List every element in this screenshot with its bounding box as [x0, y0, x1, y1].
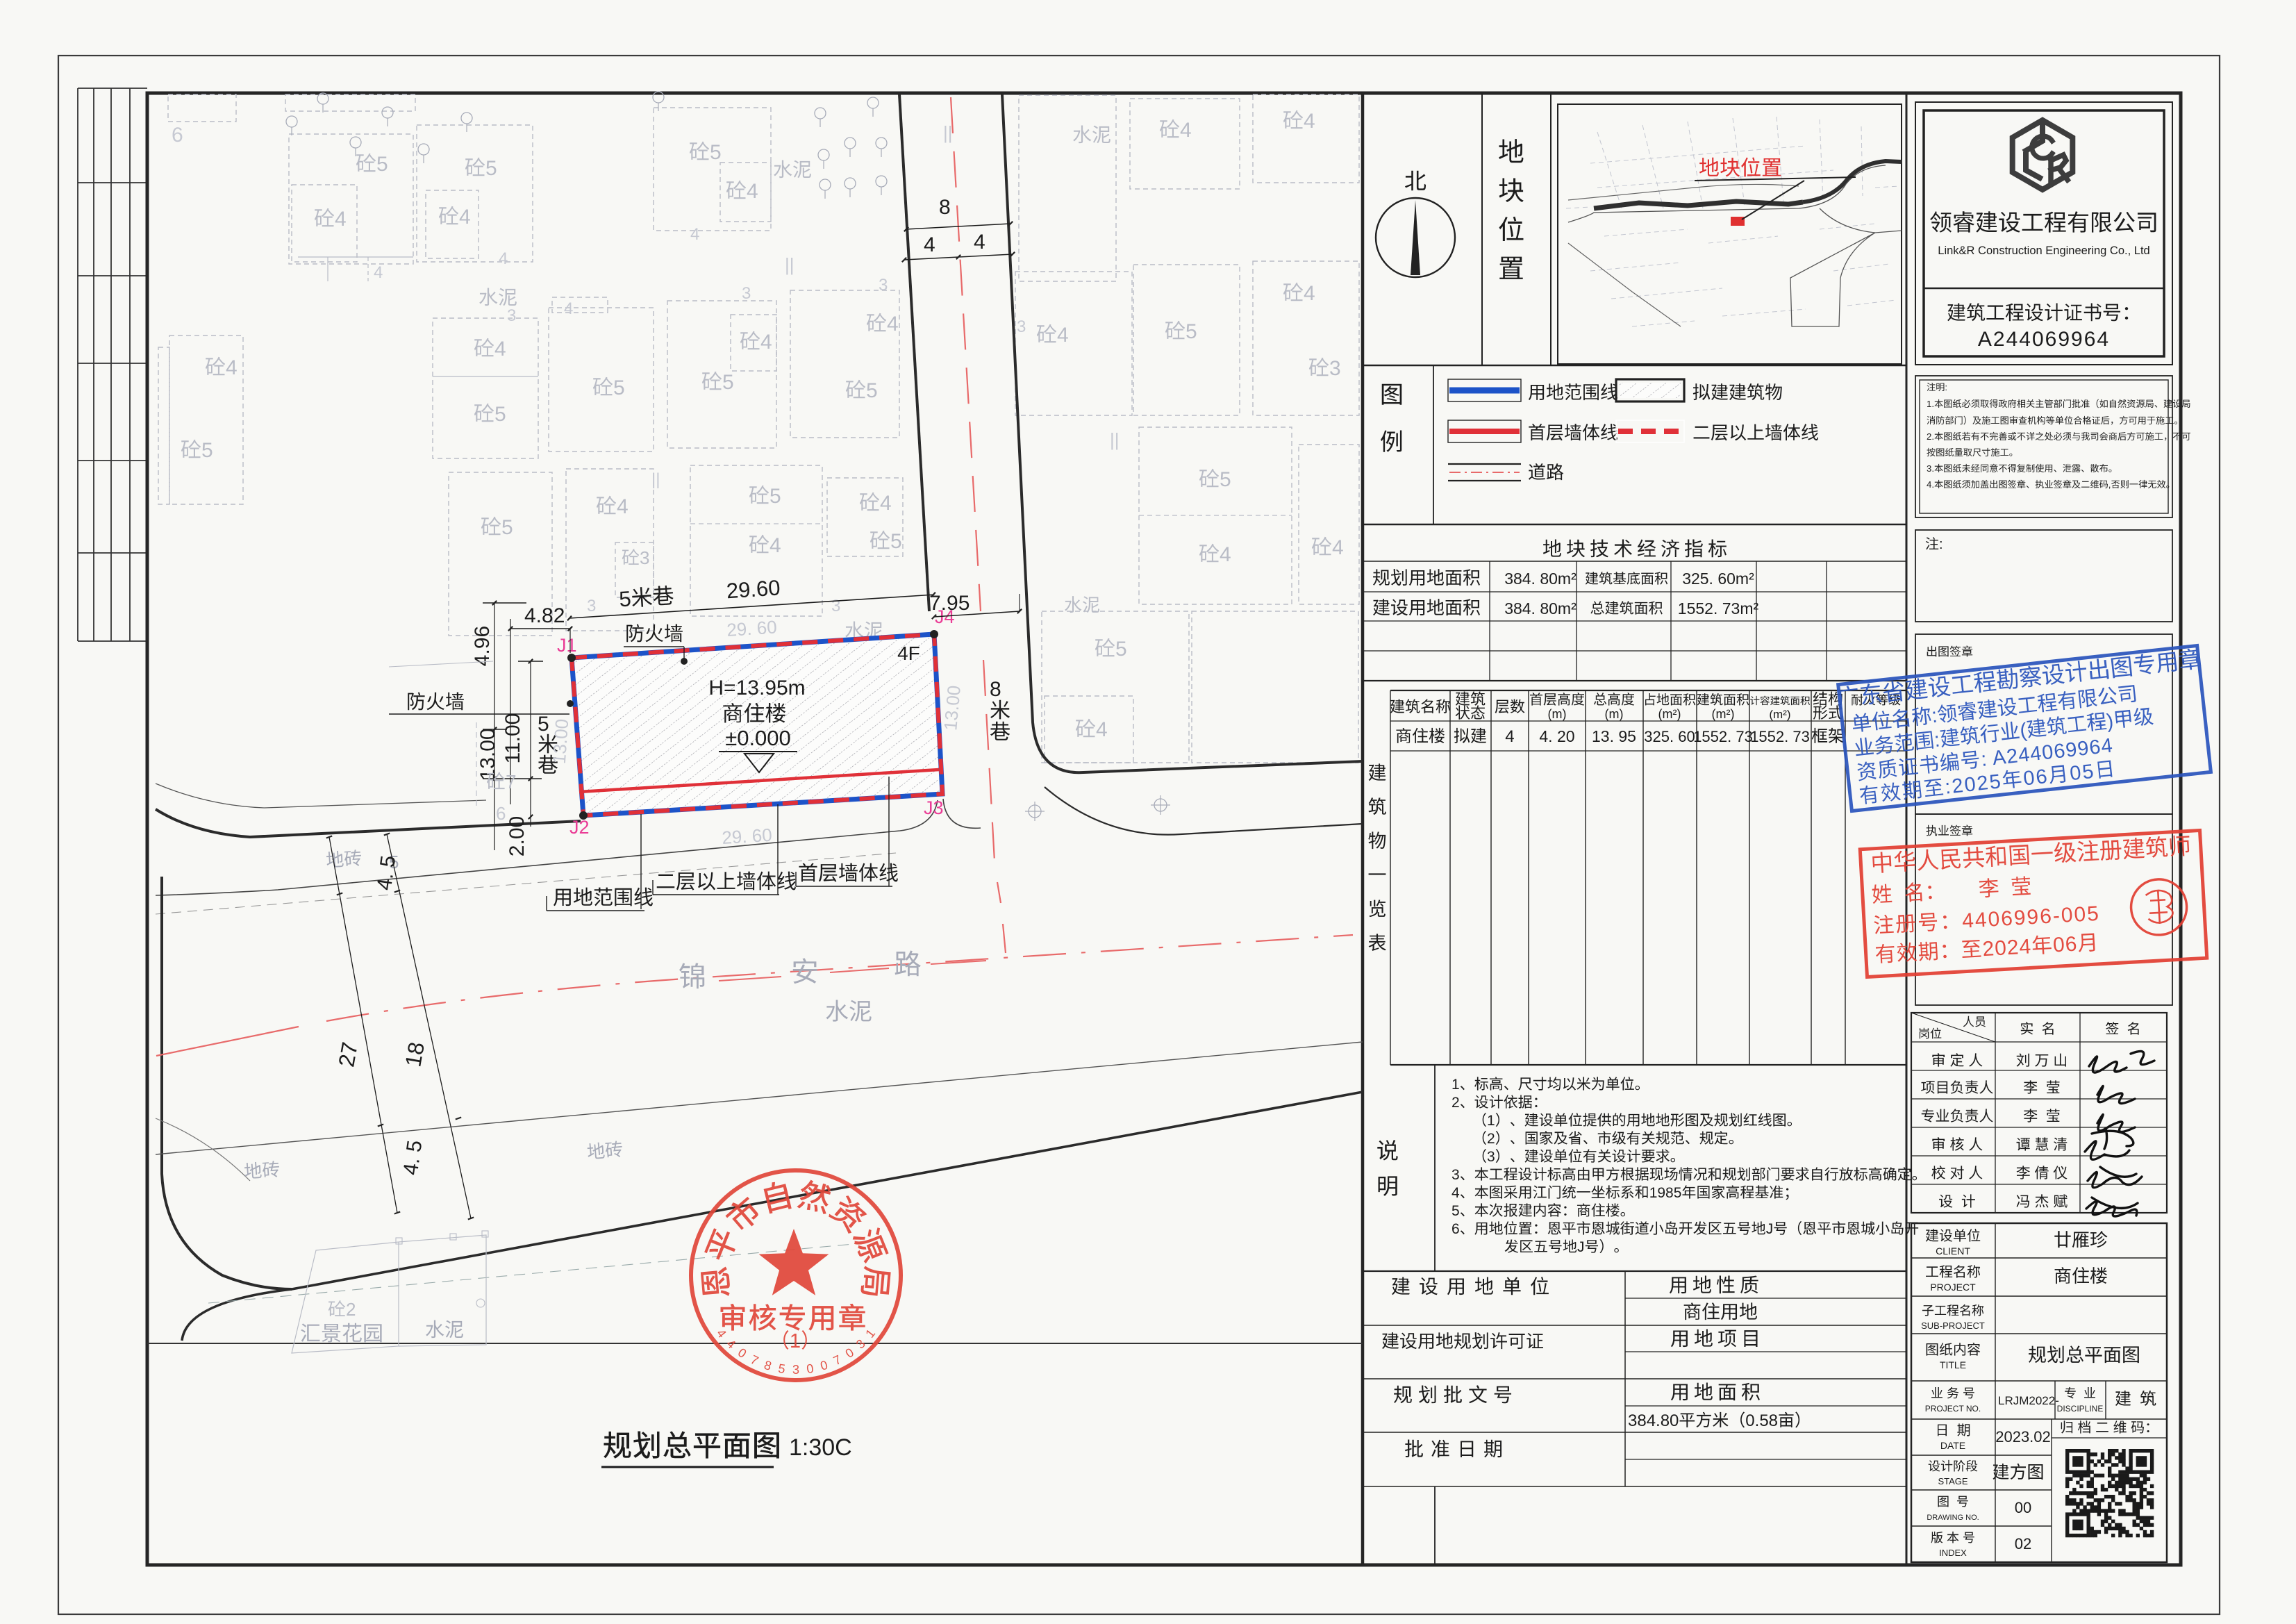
svg-text:||: ||: [943, 122, 953, 143]
svg-text:2: 2: [1487, 1131, 1495, 1147]
svg-text:4: 4: [887, 313, 899, 335]
svg-text:0: 0: [843, 1345, 857, 1361]
svg-text:6: 6: [496, 803, 506, 824]
svg-text:5: 5: [1186, 320, 1197, 343]
svg-text:DRAWING NO.: DRAWING NO.: [1927, 1514, 1979, 1522]
svg-text:2: 2: [1451, 1095, 1460, 1111]
svg-text:5: 5: [1115, 638, 1127, 661]
svg-text:02: 02: [2015, 1535, 2031, 1552]
svg-text:6: 6: [172, 124, 183, 147]
svg-text:±0.000: ±0.000: [725, 726, 791, 750]
svg-text:4: 4: [747, 180, 758, 203]
svg-text:4: 4: [374, 263, 383, 282]
svg-text:0: 0: [806, 1361, 815, 1376]
svg-text:DISCIPLINE: DISCIPLINE: [2057, 1404, 2104, 1414]
svg-text:4: 4: [617, 495, 629, 518]
svg-text:4406996-005: 4406996-005: [1961, 902, 2100, 933]
svg-text:5: 5: [618, 586, 631, 611]
svg-text::: :: [1945, 382, 1947, 392]
svg-text:(m): (m): [1605, 707, 1624, 721]
svg-text:00: 00: [2015, 1499, 2031, 1516]
svg-text:5: 5: [376, 153, 388, 176]
svg-text:1552. 73m²: 1552. 73m²: [1678, 599, 1759, 618]
svg-text:1: 1: [1487, 1113, 1495, 1129]
svg-text:5: 5: [501, 516, 513, 539]
svg-text:0: 0: [819, 1358, 830, 1373]
svg-text:INDEX: INDEX: [1939, 1548, 1967, 1558]
svg-text:27: 27: [333, 1040, 363, 1068]
svg-text:(: (: [2019, 720, 2028, 743]
svg-text:4: 4: [760, 331, 772, 354]
svg-text:3: 3: [831, 597, 840, 615]
svg-text:1985: 1985: [1649, 1185, 1682, 1201]
svg-text:5: 5: [494, 403, 506, 426]
svg-text:(m²): (m²): [1712, 707, 1735, 721]
svg-text:3: 3: [1451, 1167, 1460, 1183]
svg-text:3: 3: [742, 284, 751, 303]
svg-text:2: 2: [346, 1299, 356, 1320]
svg-text:2024: 2024: [1982, 935, 2032, 961]
svg-text:13.00: 13.00: [476, 728, 499, 780]
svg-text:A244069964: A244069964: [1978, 328, 2110, 351]
svg-text:TITLE: TITLE: [1940, 1359, 1966, 1370]
svg-text:13.00: 13.00: [940, 684, 965, 731]
svg-text:DATE: DATE: [1940, 1440, 1965, 1451]
svg-text:CLIENT: CLIENT: [1936, 1245, 1970, 1257]
svg-text:4: 4: [1057, 324, 1069, 347]
svg-text:Link&R Construction Engineerin: Link&R Construction Engineering Co., Ltd: [1938, 245, 2149, 257]
svg-text:4. 20: 4. 20: [1539, 727, 1574, 745]
svg-text:2023.02: 2023.02: [1995, 1428, 2051, 1445]
svg-text:29. 60: 29. 60: [726, 616, 777, 640]
svg-text:5: 5: [710, 141, 722, 164]
svg-text:1.: 1.: [1927, 399, 1934, 409]
svg-text:7.95: 7.95: [929, 592, 970, 615]
svg-text:4: 4: [1220, 543, 1231, 566]
svg-text:4: 4: [974, 231, 985, 254]
svg-text:0.58: 0.58: [1745, 1411, 1778, 1430]
svg-text:7: 7: [831, 1352, 844, 1368]
svg-text:STAGE: STAGE: [1938, 1476, 1968, 1486]
svg-text:3: 3: [507, 306, 516, 325]
svg-text:J: J: [1577, 1239, 1585, 1255]
svg-text:4.96: 4.96: [471, 626, 494, 666]
svg-text:05: 05: [2069, 761, 2097, 786]
svg-text:06: 06: [2052, 933, 2078, 957]
svg-text:13.00: 13.00: [549, 718, 572, 765]
svg-text:29. 60: 29. 60: [722, 825, 773, 848]
svg-text:||: ||: [785, 254, 795, 275]
svg-text:13. 95: 13. 95: [1592, 727, 1636, 745]
svg-text:384. 80m²: 384. 80m²: [1504, 570, 1577, 588]
svg-text:3: 3: [1487, 1149, 1495, 1165]
svg-text:4: 4: [690, 225, 699, 244]
svg-text:||: ||: [1110, 429, 1120, 450]
svg-text:1552. 73: 1552. 73: [1693, 728, 1753, 745]
svg-text:4.82: 4.82: [524, 604, 565, 627]
svg-text:18: 18: [400, 1040, 429, 1068]
svg-text:4: 4: [880, 492, 892, 515]
svg-text:4: 4: [494, 338, 506, 361]
svg-text:,: ,: [2108, 479, 2111, 490]
svg-text:06: 06: [2022, 765, 2050, 790]
svg-text:6: 6: [1451, 1221, 1460, 1237]
svg-text:(m²): (m²): [1769, 708, 1790, 721]
svg-text:4F: 4F: [897, 643, 920, 664]
svg-text:4: 4: [1096, 718, 1108, 741]
svg-text:PROJECT NO.: PROJECT NO.: [1925, 1404, 1981, 1414]
svg-text:2.: 2.: [1927, 431, 1934, 442]
svg-text:325. 60m²: 325. 60m²: [1682, 570, 1754, 588]
svg-text:5: 5: [770, 485, 781, 508]
svg-text:4: 4: [335, 208, 347, 231]
svg-text:J: J: [1766, 1221, 1774, 1237]
svg-text:384. 80m²: 384. 80m²: [1504, 599, 1577, 618]
svg-text:5: 5: [1220, 468, 1231, 491]
svg-text::: :: [1939, 537, 1943, 552]
svg-text:8: 8: [763, 1358, 774, 1373]
svg-text:3.: 3.: [1927, 463, 1934, 474]
svg-text:J2: J2: [569, 817, 590, 838]
svg-text:1: 1: [863, 1327, 878, 1341]
svg-text:1:30C: 1:30C: [789, 1434, 852, 1461]
svg-text:PROJECT: PROJECT: [1930, 1282, 1976, 1293]
svg-text:4: 4: [226, 356, 238, 379]
svg-text:3: 3: [1329, 357, 1341, 380]
svg-text:11.00: 11.00: [501, 713, 524, 764]
svg-text:SUB-PROJECT: SUB-PROJECT: [1921, 1320, 1985, 1331]
svg-text:5: 5: [722, 371, 734, 394]
svg-text:4. 5: 4. 5: [399, 1139, 427, 1177]
svg-text:(m): (m): [1548, 707, 1567, 721]
svg-text:5: 5: [866, 379, 878, 402]
svg-text:4: 4: [1505, 727, 1514, 746]
svg-text:4: 4: [564, 299, 573, 318]
svg-text:4: 4: [714, 1327, 729, 1341]
svg-text:5: 5: [201, 439, 213, 462]
svg-text:4: 4: [1304, 110, 1315, 133]
svg-text:0: 0: [735, 1345, 749, 1361]
svg-text:J3: J3: [924, 797, 944, 818]
svg-text:3: 3: [640, 547, 649, 568]
svg-text:7: 7: [748, 1352, 760, 1368]
svg-text:4: 4: [1332, 536, 1344, 559]
svg-text:5: 5: [777, 1361, 786, 1376]
svg-text:3: 3: [792, 1363, 799, 1377]
svg-text:2.00: 2.00: [506, 816, 529, 856]
svg-text:J1: J1: [557, 635, 577, 656]
svg-text:H=13.95m: H=13.95m: [708, 677, 805, 699]
svg-text:LRJM2022-: LRJM2022-: [1998, 1394, 2059, 1407]
svg-text:4: 4: [770, 534, 781, 557]
svg-text:29.60: 29.60: [726, 575, 781, 603]
svg-text:5: 5: [1451, 1203, 1460, 1219]
svg-text:3: 3: [587, 597, 596, 615]
svg-text:384.80: 384.80: [1628, 1411, 1679, 1430]
svg-text:1: 1: [1451, 1077, 1460, 1093]
svg-text:5: 5: [613, 376, 625, 399]
svg-text::: :: [1933, 729, 1940, 752]
svg-text:4: 4: [924, 233, 935, 256]
svg-text:5: 5: [538, 713, 549, 736]
svg-text::: :: [1931, 705, 1938, 728]
svg-text:4: 4: [1304, 282, 1315, 305]
svg-text:3: 3: [1017, 317, 1026, 336]
svg-text:4: 4: [459, 206, 471, 229]
svg-text:1552. 73: 1552. 73: [1750, 728, 1810, 745]
svg-text:4: 4: [1180, 119, 1192, 142]
svg-text:4.: 4.: [1927, 479, 1934, 490]
svg-text:325. 60: 325. 60: [1644, 728, 1695, 745]
svg-text:4. 5: 4. 5: [373, 854, 401, 892]
svg-text:8: 8: [939, 196, 951, 219]
svg-text:): ): [2106, 710, 2115, 733]
svg-text:5: 5: [485, 157, 497, 180]
svg-text:5: 5: [890, 530, 902, 553]
svg-text:4: 4: [499, 249, 508, 268]
svg-text:8: 8: [990, 678, 1001, 701]
svg-text:(m²): (m²): [1658, 707, 1681, 721]
svg-text:||: ||: [651, 470, 660, 489]
svg-text:3: 3: [879, 276, 888, 295]
svg-text:1: 1: [790, 1330, 801, 1352]
svg-text:4: 4: [1451, 1185, 1460, 1201]
svg-text:7: 7: [506, 771, 517, 793]
